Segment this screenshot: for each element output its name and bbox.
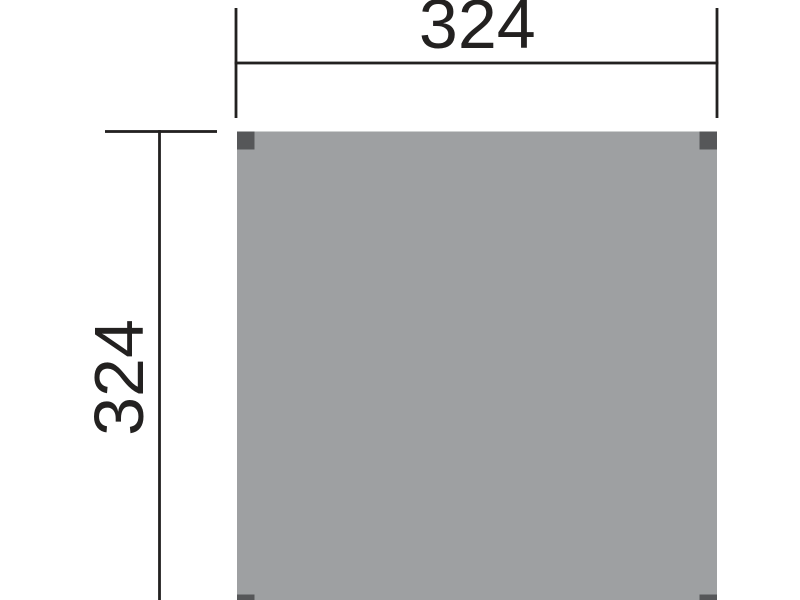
- svg-text:324: 324: [419, 0, 536, 63]
- svg-text:324: 324: [80, 319, 158, 436]
